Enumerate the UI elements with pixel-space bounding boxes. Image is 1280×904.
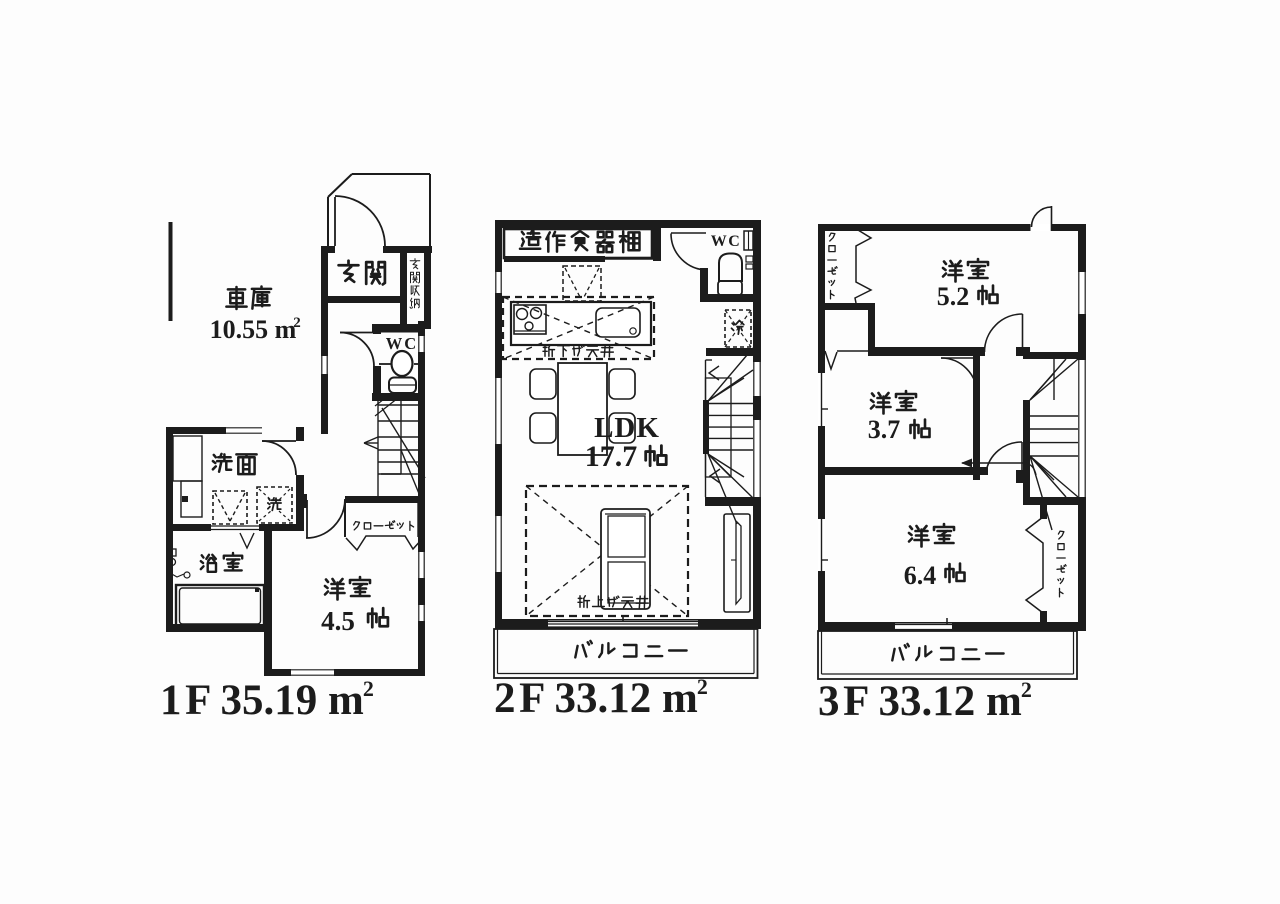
svg-text:4.5: 4.5 xyxy=(321,606,355,636)
svg-text:5.2: 5.2 xyxy=(937,282,970,311)
svg-text:1 F 35.19 m2: 1 F 35.19 m2 xyxy=(160,676,374,724)
svg-text:2: 2 xyxy=(293,315,301,331)
svg-text:3 F 33.12 m2: 3 F 33.12 m2 xyxy=(818,677,1032,725)
svg-text:2 F 33.12 m2: 2 F 33.12 m2 xyxy=(494,674,708,722)
svg-text:3.7: 3.7 xyxy=(868,415,901,444)
svg-text:6.4: 6.4 xyxy=(904,561,937,590)
svg-text:17.7: 17.7 xyxy=(585,440,638,473)
svg-text:WC: WC xyxy=(711,233,742,250)
svg-text:10.55 m: 10.55 m xyxy=(210,315,297,344)
